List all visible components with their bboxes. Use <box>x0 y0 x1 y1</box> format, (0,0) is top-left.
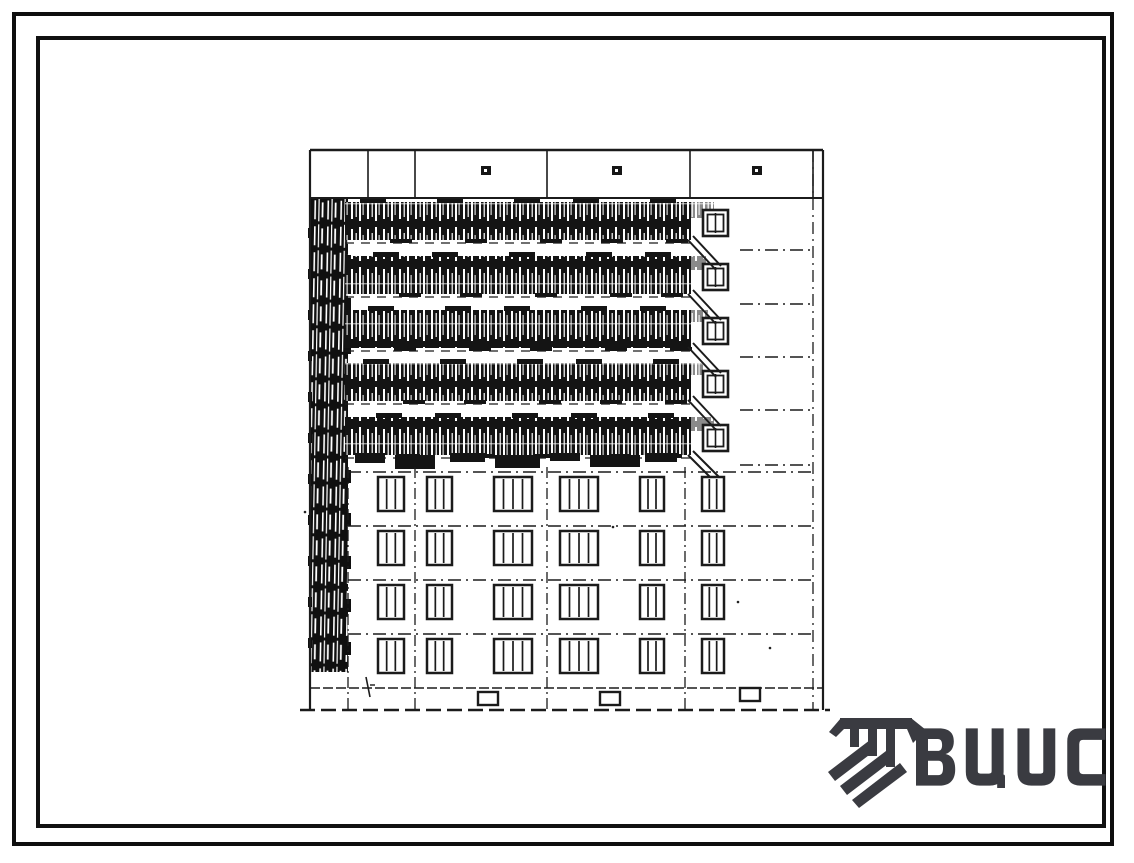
window <box>640 639 664 673</box>
scan-speck <box>304 511 307 514</box>
level-mark <box>366 677 370 697</box>
basement-vent <box>740 688 760 701</box>
balcony-band <box>345 202 691 240</box>
scan-speck <box>769 647 772 650</box>
window <box>378 639 404 673</box>
window <box>378 531 404 565</box>
basement-vent <box>600 692 620 705</box>
band-scallop <box>450 453 485 462</box>
window <box>640 477 664 511</box>
elevation-svg <box>300 145 840 715</box>
band-scallop <box>645 453 677 462</box>
building-elevation-drawing <box>300 145 840 715</box>
band-scallop <box>550 453 580 461</box>
scanned-drawing-sheet: { "document": { "description": "Scanned … <box>0 0 1134 863</box>
logo: ВЦИС <box>828 710 1114 820</box>
band-scallop <box>495 455 540 468</box>
window <box>702 639 724 673</box>
window <box>427 477 452 511</box>
window <box>640 585 664 619</box>
window <box>427 585 452 619</box>
balcony-band <box>345 310 691 348</box>
balcony-band <box>345 363 691 401</box>
window <box>640 531 664 565</box>
window <box>702 477 724 511</box>
window <box>702 531 724 565</box>
band-scallop <box>355 453 385 463</box>
scan-speck <box>612 526 615 529</box>
window <box>378 477 404 511</box>
window <box>427 531 452 565</box>
hatched-monogram-icon <box>828 710 928 810</box>
window <box>702 585 724 619</box>
logo-wordmark <box>916 726 1106 788</box>
band-scallop <box>590 455 640 467</box>
band-scallop <box>395 455 435 469</box>
scan-speck <box>737 601 740 604</box>
balcony-band <box>345 417 691 455</box>
stairwell-strip <box>310 198 348 672</box>
balcony-band <box>345 256 691 294</box>
window <box>378 585 404 619</box>
window <box>427 639 452 673</box>
basement-vent <box>478 692 498 705</box>
